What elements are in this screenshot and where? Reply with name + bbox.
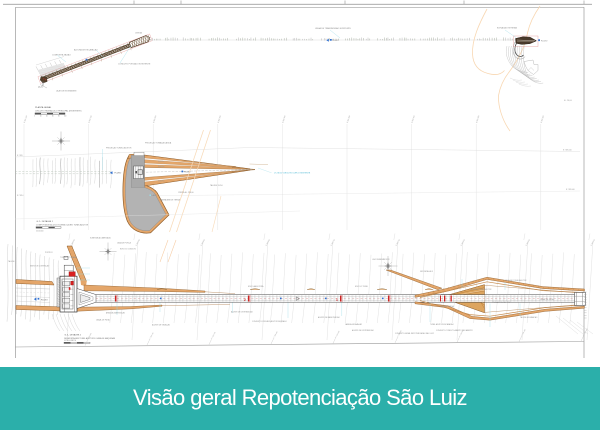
svg-text:PROJECAO TUNEL ADUTOR: PROJECAO TUNEL ADUTOR — [106, 147, 132, 150]
svg-text:PROJECAO TOMADA DAGUA: PROJECAO TOMADA DAGUA — [145, 142, 172, 145]
svg-text:AREA DA SUBESTACAO: AREA DA SUBESTACAO — [106, 312, 126, 315]
svg-text:(2.2): (2.2) — [38, 87, 43, 89]
svg-text:CRISTA: CRISTA — [135, 32, 143, 35]
svg-text:EIXO DO CONDUTO: EIXO DO CONDUTO — [120, 249, 137, 251]
svg-text:LAJE DE MONTAGEM: LAJE DE MONTAGEM — [56, 90, 77, 93]
svg-text:0 20 40 100: 0 20 40 100 — [36, 230, 44, 232]
svg-text:LINHA DE TRANSMISSAO EXISTENTE: LINHA DE TRANSMISSAO EXISTENTE — [315, 27, 352, 30]
svg-text:AJUSTE DE DISTRIBUICAO: AJUSTE DE DISTRIBUICAO — [352, 329, 374, 332]
svg-text:FLUXO: FLUXO — [115, 173, 122, 175]
svg-text:TALUDE ESCAVACAO: TALUDE ESCAVACAO — [520, 316, 538, 319]
svg-text:60: 60 — [52, 116, 54, 118]
svg-text:G.3 - DETALHE 2: G.3 - DETALHE 2 — [65, 333, 82, 336]
svg-text:JANELA ESCAVACAO: JANELA ESCAVACAO — [345, 323, 363, 326]
svg-text:CONJUNTO CONDUTO ABERTO CEU AB: CONJUNTO CONDUTO ABERTO CEU ABERTO — [436, 329, 474, 332]
svg-text:LT 230 kV CIRCUITO DUPLO EXIST: LT 230 kV CIRCUITO DUPLO EXISTENTE — [274, 173, 311, 175]
svg-text:PLANTA GERAL: PLANTA GERAL — [35, 106, 52, 109]
svg-text:VELACAO TUNEL ADUTOR: VELACAO TUNEL ADUTOR — [505, 279, 527, 282]
svg-text:80: 80 — [58, 116, 60, 118]
svg-text:AJUSTE DE DISTRIBUICAO: AJUSTE DE DISTRIBUICAO — [231, 311, 253, 314]
svg-text:MURO DE CONTENCAO: MURO DE CONTENCAO — [30, 265, 50, 268]
svg-text:FLUXO: FLUXO — [333, 40, 340, 42]
svg-text:BARRAGEM DE TERRA: BARRAGEM DE TERRA — [160, 199, 181, 202]
svg-text:40: 40 — [46, 116, 48, 118]
svg-text:CANAL DE FUGA: CANAL DE FUGA — [540, 298, 554, 301]
svg-text:PORTICO: PORTICO — [45, 252, 53, 254]
svg-text:LIGO RESERVATORIO: LIGO RESERVATORIO — [372, 258, 390, 261]
svg-text:20: 20 — [40, 116, 42, 118]
svg-text:TALUDE 1V:2H: TALUDE 1V:2H — [210, 184, 223, 187]
svg-text:N 7.385.000: N 7.385.000 — [566, 189, 575, 191]
svg-text:CRISTA EL. 228,00: CRISTA EL. 228,00 — [178, 191, 194, 194]
svg-text:VELACAO BLOCO REM: VELACAO BLOCO REM — [492, 301, 511, 304]
svg-text:100: 100 — [64, 116, 67, 118]
svg-text:SUBESTACAO ABRIGADA: SUBESTACAO ABRIGADA — [90, 237, 111, 240]
svg-text:COMPORTA VAGAO: COMPORTA VAGAO — [52, 54, 71, 57]
svg-text:EIXO DO TUNEL: EIXO DO TUNEL — [355, 286, 368, 288]
svg-text:Guia Flux: Guia Flux — [158, 181, 165, 183]
svg-text:TALUDE: TALUDE — [8, 260, 15, 263]
svg-text:FLUXO: FLUXO — [184, 171, 191, 173]
svg-text:EIXO DA ADUTORA: EIXO DA ADUTORA — [248, 285, 264, 288]
svg-text:CANAL DE FUGA: CANAL DE FUGA — [96, 319, 110, 322]
svg-text:Guia Flux: Guia Flux — [158, 166, 165, 168]
svg-text:ALTURA DE ESCAVACAO: ALTURA DE ESCAVACAO — [74, 49, 98, 52]
svg-text:N 7.385.200: N 7.385.200 — [563, 150, 572, 152]
svg-text:CONJUNTO FORCADO ADUTOR BLINDA: CONJUNTO FORCADO ADUTOR BLINDADO — [252, 320, 288, 323]
svg-text:VELACAO TUNEL ADUTOR: VELACAO TUNEL ADUTOR — [470, 288, 492, 291]
svg-text:FLUXO: FLUXO — [41, 300, 48, 302]
svg-text:EL. 230,00: EL. 230,00 — [564, 100, 572, 102]
svg-text:CIRCUITO HIDRAULICO PRINCIPAL: CIRCUITO HIDRAULICO PRINCIPAL (EXISTENTE… — [35, 110, 82, 113]
svg-text:CONDUTO FORCADO EXISTENTE: CONDUTO FORCADO EXISTENTE — [118, 63, 151, 66]
svg-text:CAMARA CARGA: CAMARA CARGA — [440, 305, 454, 308]
svg-text:AJUSTE DE VEDACAO: AJUSTE DE VEDACAO — [152, 324, 171, 327]
svg-text:VER DETALHE 3: VER DETALHE 3 — [420, 270, 433, 273]
svg-text:COMPORTA DE ACUCO E DESBLOQUEI: COMPORTA DE ACUCO E DESBLOQUEIO TUNEL AD… — [36, 223, 89, 226]
svg-text:2: 2 — [244, 298, 246, 302]
svg-text:N 7.385: N 7.385 — [17, 155, 23, 157]
svg-text:CONJUNTO GERAL REPOTENCIACAO S: CONJUNTO GERAL REPOTENCIACAO SAO LUIZ — [395, 332, 434, 335]
svg-text:1: 1 — [336, 298, 338, 302]
svg-text:ELEVACAO EXTREMA: ELEVACAO EXTREMA — [497, 27, 517, 30]
svg-text:AJUSTE DE MANUTENCAO: AJUSTE DE MANUTENCAO — [318, 316, 340, 319]
svg-text:FLUXO: FLUXO — [541, 40, 548, 42]
svg-text:Guia Flux: Guia Flux — [158, 161, 165, 163]
svg-text:CASA DE FORCA: CASA DE FORCA — [117, 242, 132, 245]
svg-text:TUNEL ADUTOR ESCAVACAO: TUNEL ADUTOR ESCAVACAO — [430, 323, 454, 326]
svg-text:G.2 - DETALHE 1: G.2 - DETALHE 1 — [37, 220, 54, 223]
svg-text:TORRE DE TOMADA: TORRE DE TOMADA — [60, 256, 77, 259]
svg-text:LAGO: LAGO — [152, 194, 158, 197]
svg-text:DESMONTAGEM TUNEL ADUTOR E CAS: DESMONTAGEM TUNEL ADUTOR E CASA DE MAQUI… — [64, 337, 116, 340]
svg-text:N 7.385.0: N 7.385.0 — [17, 195, 24, 197]
